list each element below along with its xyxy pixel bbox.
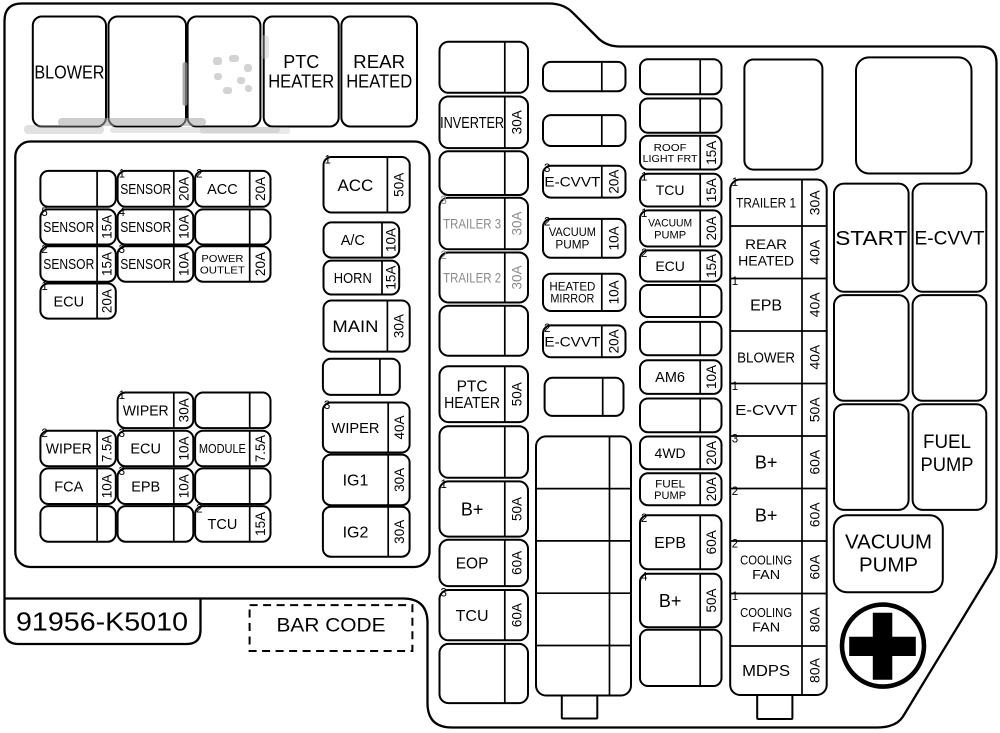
svg-text:3: 3 <box>119 428 125 440</box>
svg-text:30A: 30A <box>806 190 822 216</box>
svg-text:10A: 10A <box>176 436 191 460</box>
svg-text:MDPS: MDPS <box>742 663 790 680</box>
svg-text:30A: 30A <box>392 520 407 544</box>
svg-text:E-CVVT: E-CVVT <box>915 228 985 249</box>
svg-text:A/C: A/C <box>341 233 365 249</box>
svg-text:30A: 30A <box>509 110 524 134</box>
svg-text:40A: 40A <box>392 415 407 439</box>
svg-text:POWER: POWER <box>201 253 243 265</box>
svg-text:10A: 10A <box>99 474 114 498</box>
svg-text:80A: 80A <box>806 657 822 683</box>
svg-text:SENSOR: SENSOR <box>120 182 171 198</box>
svg-text:EOP: EOP <box>456 555 489 572</box>
svg-text:3: 3 <box>324 400 330 412</box>
svg-text:TRAILER 3: TRAILER 3 <box>443 216 501 231</box>
svg-text:2: 2 <box>441 250 447 262</box>
svg-text:2: 2 <box>641 248 647 260</box>
svg-text:40A: 40A <box>806 239 822 265</box>
svg-text:20A: 20A <box>253 177 268 201</box>
svg-text:FUEL: FUEL <box>655 478 685 490</box>
svg-text:7.5A: 7.5A <box>253 435 268 462</box>
svg-text:7.5A: 7.5A <box>99 435 114 462</box>
svg-text:VACUUM: VACUUM <box>845 532 932 554</box>
svg-text:IG2: IG2 <box>343 525 369 542</box>
svg-text:60A: 60A <box>509 603 524 627</box>
svg-text:PUMP: PUMP <box>654 229 686 241</box>
svg-text:50A: 50A <box>704 588 719 612</box>
svg-text:10A: 10A <box>606 226 621 250</box>
svg-text:SENSOR: SENSOR <box>120 220 171 236</box>
svg-text:WIPER: WIPER <box>46 442 92 458</box>
svg-text:REAR: REAR <box>353 52 405 72</box>
svg-text:FUEL: FUEL <box>923 432 971 453</box>
svg-text:HEATED: HEATED <box>738 252 794 268</box>
svg-text:60A: 60A <box>806 449 822 475</box>
svg-text:ACC: ACC <box>207 182 238 198</box>
svg-text:AM6: AM6 <box>655 370 685 386</box>
svg-text:PTC: PTC <box>457 378 488 395</box>
svg-text:PUMP: PUMP <box>654 490 686 502</box>
svg-text:15A: 15A <box>704 141 719 165</box>
svg-text:40A: 40A <box>806 292 822 318</box>
svg-text:1: 1 <box>641 208 647 220</box>
svg-text:ECU: ECU <box>53 294 84 310</box>
svg-text:20A: 20A <box>606 170 621 194</box>
svg-text:1: 1 <box>732 177 738 189</box>
svg-text:50A: 50A <box>806 397 822 423</box>
svg-text:2: 2 <box>41 428 47 440</box>
svg-text:3: 3 <box>544 163 550 175</box>
svg-text:30A: 30A <box>392 468 407 492</box>
svg-text:FAN: FAN <box>752 620 780 634</box>
svg-text:30A: 30A <box>176 398 191 422</box>
svg-text:30A: 30A <box>509 265 524 289</box>
svg-text:BAR CODE: BAR CODE <box>277 615 386 636</box>
svg-text:60A: 60A <box>704 530 719 554</box>
svg-text:50A: 50A <box>509 382 524 406</box>
svg-text:B+: B+ <box>461 499 484 519</box>
svg-text:PUMP: PUMP <box>859 555 918 577</box>
svg-text:4WD: 4WD <box>655 445 686 461</box>
svg-text:HEATED: HEATED <box>549 281 595 293</box>
svg-text:20A: 20A <box>253 252 268 276</box>
svg-text:20A: 20A <box>176 177 191 201</box>
svg-text:15A: 15A <box>704 178 719 202</box>
svg-text:MODULE: MODULE <box>199 442 246 456</box>
svg-text:COOLING: COOLING <box>740 606 792 620</box>
svg-text:HEATED: HEATED <box>346 71 412 91</box>
svg-text:B+: B+ <box>755 453 778 473</box>
svg-text:60A: 60A <box>509 551 524 575</box>
svg-text:REAR: REAR <box>745 236 787 252</box>
svg-text:PTC: PTC <box>283 52 319 72</box>
svg-text:50A: 50A <box>391 173 406 197</box>
svg-text:2: 2 <box>641 513 647 525</box>
svg-text:20A: 20A <box>704 477 719 501</box>
svg-text:1: 1 <box>119 390 125 402</box>
svg-text:1: 1 <box>441 479 447 491</box>
svg-text:80A: 80A <box>806 607 822 633</box>
svg-text:1: 1 <box>41 281 47 293</box>
svg-text:SENSOR: SENSOR <box>43 220 94 236</box>
svg-text:TRAILER 1: TRAILER 1 <box>736 196 796 211</box>
svg-text:2: 2 <box>544 216 550 228</box>
svg-text:BLOWER: BLOWER <box>34 62 104 82</box>
svg-text:10A: 10A <box>176 252 191 276</box>
svg-text:1: 1 <box>119 168 125 180</box>
svg-text:3: 3 <box>732 434 738 446</box>
svg-text:EPB: EPB <box>131 479 160 495</box>
svg-text:TCU: TCU <box>207 517 237 533</box>
svg-text:15A: 15A <box>99 252 114 276</box>
svg-text:60A: 60A <box>806 554 822 580</box>
svg-text:40A: 40A <box>806 344 822 370</box>
svg-text:15A: 15A <box>253 512 268 536</box>
svg-text:1: 1 <box>732 381 738 393</box>
svg-text:2: 2 <box>732 539 738 551</box>
svg-text:ACC: ACC <box>337 176 373 195</box>
svg-text:4: 4 <box>641 571 648 583</box>
svg-text:B+: B+ <box>659 591 682 611</box>
svg-text:VACUUM: VACUUM <box>549 227 596 239</box>
svg-text:91956-K5010: 91956-K5010 <box>16 606 188 636</box>
svg-text:BLOWER: BLOWER <box>737 350 795 366</box>
svg-text:3: 3 <box>441 195 447 207</box>
svg-text:10A: 10A <box>176 215 191 239</box>
svg-text:ROOF: ROOF <box>654 142 687 154</box>
svg-text:MIRROR: MIRROR <box>550 294 594 306</box>
svg-text:ECU: ECU <box>130 442 161 458</box>
svg-text:15A: 15A <box>383 266 398 290</box>
svg-text:3: 3 <box>119 466 125 478</box>
svg-text:HEATER: HEATER <box>268 71 334 91</box>
svg-text:15A: 15A <box>704 254 719 278</box>
svg-text:1: 1 <box>732 276 738 288</box>
svg-text:2: 2 <box>544 323 550 335</box>
svg-text:EPB: EPB <box>750 298 782 315</box>
svg-text:PUMP: PUMP <box>555 240 589 252</box>
svg-text:LIGHT FRT: LIGHT FRT <box>643 153 699 165</box>
svg-text:FAN: FAN <box>752 568 780 582</box>
svg-text:2: 2 <box>196 168 202 180</box>
svg-text:WIPER: WIPER <box>332 420 380 437</box>
svg-text:HORN: HORN <box>334 271 372 287</box>
svg-text:E-CVVT: E-CVVT <box>544 333 600 349</box>
svg-text:IG1: IG1 <box>343 473 369 490</box>
svg-text:20A: 20A <box>704 216 719 240</box>
svg-text:30A: 30A <box>509 211 524 235</box>
svg-text:10A: 10A <box>176 474 191 498</box>
svg-text:INVERTER: INVERTER <box>440 115 504 132</box>
svg-text:VACUUM: VACUUM <box>648 217 692 229</box>
svg-text:20A: 20A <box>704 441 719 465</box>
svg-text:1: 1 <box>732 591 738 603</box>
svg-text:PUMP: PUMP <box>921 455 974 476</box>
svg-text:10A: 10A <box>704 365 719 389</box>
svg-text:50A: 50A <box>509 497 524 521</box>
svg-text:3: 3 <box>119 244 125 256</box>
svg-text:5: 5 <box>41 207 47 219</box>
svg-text:10A: 10A <box>606 280 621 304</box>
svg-text:2: 2 <box>732 486 738 498</box>
svg-text:MAIN: MAIN <box>332 318 378 336</box>
svg-text:SENSOR: SENSOR <box>43 257 94 273</box>
svg-text:10A: 10A <box>383 228 398 252</box>
svg-text:30A: 30A <box>391 314 406 338</box>
svg-text:2: 2 <box>196 504 202 516</box>
svg-text:2: 2 <box>41 244 47 256</box>
svg-text:3: 3 <box>441 588 447 600</box>
svg-text:B+: B+ <box>755 505 778 525</box>
svg-text:20A: 20A <box>606 329 621 353</box>
svg-text:60A: 60A <box>806 502 822 528</box>
svg-text:WIPER: WIPER <box>123 404 169 420</box>
svg-text:COOLING: COOLING <box>740 554 792 568</box>
svg-text:HEATER: HEATER <box>444 395 500 412</box>
svg-text:ECU: ECU <box>655 258 685 274</box>
svg-text:EPB: EPB <box>654 535 686 552</box>
svg-text:SENSOR: SENSOR <box>120 257 171 273</box>
svg-text:1: 1 <box>325 155 331 167</box>
svg-text:START: START <box>835 228 907 250</box>
svg-text:TCU: TCU <box>656 182 685 198</box>
svg-text:4: 4 <box>119 207 126 219</box>
svg-text:TCU: TCU <box>456 608 489 625</box>
svg-text:TRAILER 2: TRAILER 2 <box>443 270 501 285</box>
svg-text:15A: 15A <box>99 215 114 239</box>
svg-text:1: 1 <box>641 171 647 183</box>
svg-text:E-CVVT: E-CVVT <box>544 174 600 190</box>
svg-text:20A: 20A <box>99 289 114 313</box>
svg-text:FCA: FCA <box>54 479 83 495</box>
svg-text:E-CVVT: E-CVVT <box>735 402 797 419</box>
svg-text:OUTLET: OUTLET <box>200 264 246 276</box>
